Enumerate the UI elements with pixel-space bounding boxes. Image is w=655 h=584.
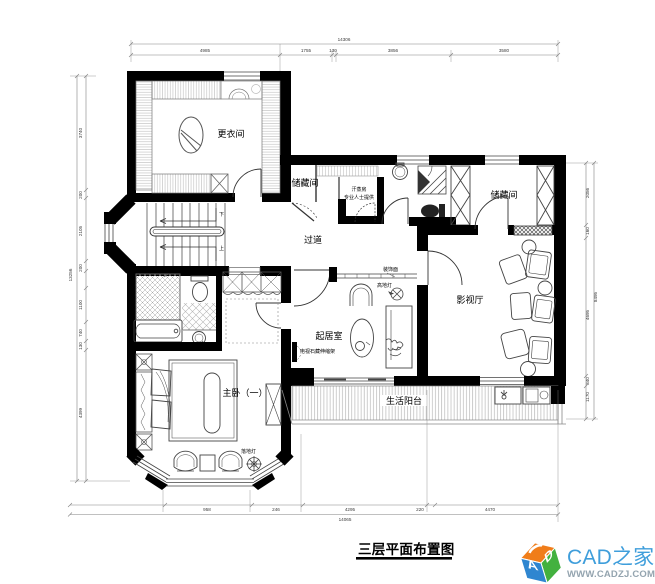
svg-text:14065: 14065	[339, 517, 352, 522]
svg-text:4399: 4399	[78, 407, 83, 418]
svg-text:1170: 1170	[585, 392, 590, 402]
svg-text:专业人士提供: 专业人士提供	[344, 194, 374, 201]
svg-text:高地灯: 高地灯	[377, 282, 392, 289]
svg-text:13256: 13256	[68, 268, 73, 281]
svg-text:340: 340	[585, 377, 590, 385]
svg-text:三层平面布置图: 三层平面布置图	[358, 541, 455, 557]
svg-text:3580: 3580	[499, 48, 510, 53]
svg-text:1100: 1100	[78, 300, 83, 310]
svg-text:200: 200	[78, 264, 83, 272]
svg-text:200: 200	[78, 191, 83, 199]
svg-text:1755: 1755	[301, 48, 312, 53]
svg-text:4470: 4470	[485, 507, 496, 512]
svg-text:130: 130	[78, 342, 83, 350]
svg-text:下: 下	[219, 212, 224, 218]
svg-text:3740: 3740	[78, 127, 83, 138]
svg-text:246: 246	[272, 507, 280, 512]
svg-text:3856: 3856	[388, 48, 399, 53]
svg-text:主卧（一）: 主卧（一）	[222, 387, 267, 398]
svg-text:2056: 2056	[585, 187, 590, 198]
svg-text:储藏间: 储藏间	[291, 177, 318, 188]
svg-text:电视石藏伸缩架: 电视石藏伸缩架	[300, 348, 335, 355]
svg-text:740: 740	[78, 329, 83, 337]
svg-text:生活阳台: 生活阳台	[386, 395, 422, 406]
svg-text:220: 220	[416, 507, 424, 512]
svg-text:958: 958	[203, 507, 211, 512]
svg-text:上: 上	[219, 245, 224, 252]
svg-text:2105: 2105	[78, 225, 83, 236]
svg-text:130: 130	[329, 48, 337, 53]
svg-text:起居室: 起居室	[315, 330, 342, 341]
svg-text:汗蒸房: 汗蒸房	[351, 186, 366, 193]
svg-text:4695: 4695	[585, 309, 590, 320]
svg-text:影视厅: 影视厅	[456, 294, 483, 305]
svg-text:160: 160	[585, 227, 590, 235]
svg-text:装饰面: 装饰面	[383, 266, 398, 273]
svg-text:14306: 14306	[338, 37, 351, 42]
svg-text:4295: 4295	[345, 507, 356, 512]
svg-text:CAD之家: CAD之家	[567, 546, 654, 569]
svg-text:更衣间: 更衣间	[217, 128, 244, 139]
svg-text:WWW.CADZJ.COM: WWW.CADZJ.COM	[567, 569, 655, 580]
svg-text:过道: 过道	[304, 234, 322, 245]
svg-text:落地灯: 落地灯	[241, 448, 256, 455]
svg-text:8495: 8495	[593, 291, 598, 302]
svg-text:4985: 4985	[200, 48, 211, 53]
